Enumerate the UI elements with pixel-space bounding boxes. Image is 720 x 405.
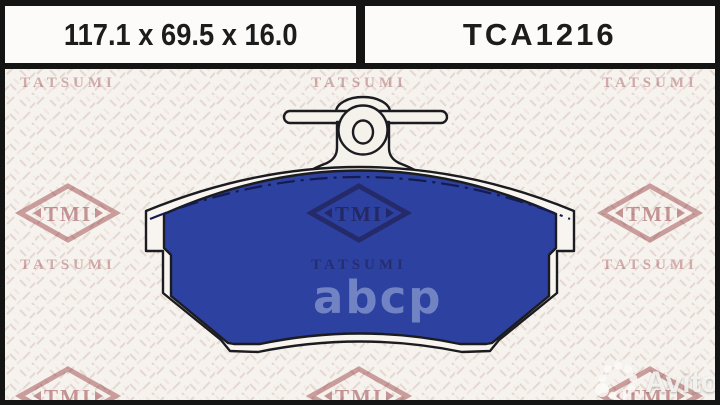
dimensions-label: 117.1 x 69.5 x 16.0 (63, 17, 297, 53)
part-number-label: TCA1216 (463, 17, 617, 53)
part-number-box: TCA1216 (365, 6, 716, 63)
sensor-grommet-hole (353, 121, 373, 144)
dimensions-box: 117.1 x 69.5 x 16.0 (5, 6, 356, 63)
product-image: abcp TMITATSUMITMITATSUMITMITATSUMITMITA… (0, 0, 720, 405)
header-bar: 117.1 x 69.5 x 16.0 TCA1216 (5, 5, 715, 69)
abcp-watermark: abcp (313, 271, 437, 324)
